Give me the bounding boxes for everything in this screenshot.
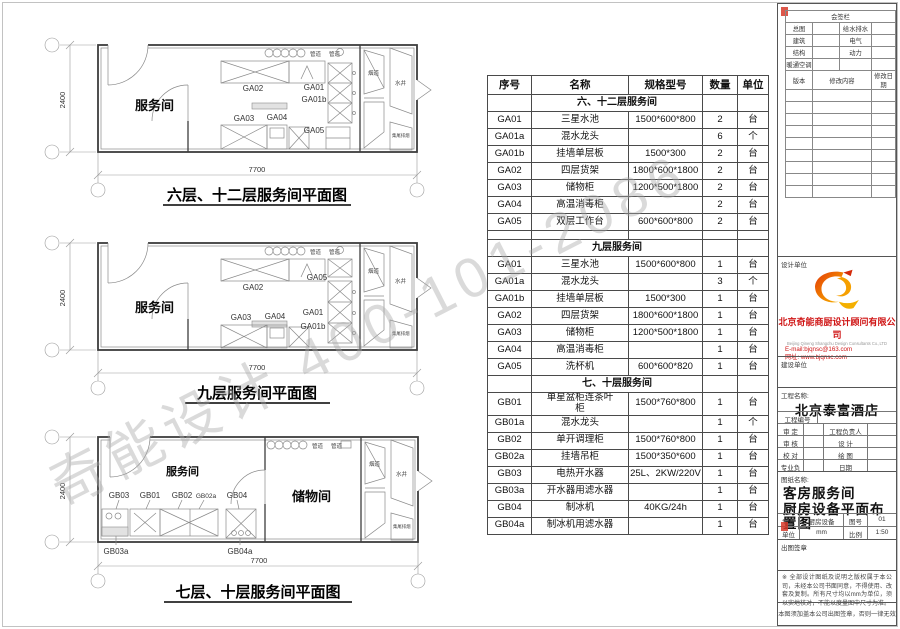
rev-blank [872, 174, 896, 186]
cell-name: 洗杯机 [532, 359, 629, 376]
cell-spec [629, 197, 703, 214]
svg-text:GB03: GB03 [109, 491, 130, 500]
meta-value: 1:50 [868, 527, 896, 539]
field-blank [804, 424, 824, 435]
cell-spec: 1800*600*1800 [629, 163, 703, 180]
room-label: 服务间 [166, 464, 199, 478]
drawing-name-line1: 客房服务间 [778, 484, 896, 503]
floor-plan-9: 2400 7700 管道 管道 [38, 226, 463, 426]
cell-unit: 台 [738, 342, 769, 359]
pipe-label: 管道 [310, 248, 322, 256]
qineng-logo-icon [806, 267, 868, 309]
plan-title: 六层、十二层服务间平面图 [167, 186, 347, 204]
floor-plan-7-10: 2400 7700 管道 管道 [38, 423, 463, 623]
rev-blank [872, 186, 896, 198]
sign-label: 建筑 [786, 35, 813, 47]
cell-code [488, 240, 532, 257]
cell-name: 混水龙头 [532, 415, 629, 432]
section-label: 九层服务间 [532, 240, 703, 257]
dim-width: 7700 [249, 363, 266, 372]
shaft-label: 水井 [396, 470, 408, 478]
sign-label: 结构 [786, 47, 813, 59]
entry-door [108, 42, 148, 85]
cell-qty: 2 [703, 146, 738, 163]
cell-name: 单开调理柜 [532, 432, 629, 449]
cell-name: 挂墙单层板 [532, 291, 629, 308]
cell-unit: 台 [738, 291, 769, 308]
cell-spec: 1500*600*800 [629, 112, 703, 129]
equipment-shapes [221, 61, 356, 149]
rev-blank [786, 162, 813, 174]
table-item-row: GA01b挂墙单层板1500*3001台 [488, 291, 769, 308]
field-label: 设 计 [824, 436, 868, 447]
sign-blank [872, 35, 896, 47]
walls [98, 437, 418, 542]
cell-unit: 台 [738, 517, 769, 534]
cell-unit: 台 [738, 197, 769, 214]
dimension-lines: 2400 7700 [58, 239, 421, 381]
cell-spec: 40KG/24h [629, 500, 703, 517]
cell-spec: 1500*300 [629, 146, 703, 163]
cell-code: GA03 [488, 180, 532, 197]
rev-blank [813, 138, 872, 150]
field-blank [868, 448, 896, 459]
table-item-row: GA05洗杯机600*600*8201台 [488, 359, 769, 376]
shaft-label: 烟道 [368, 69, 380, 77]
project-box: 工程名称: 北京泰富酒店 [778, 387, 896, 411]
shaft-zone: 烟道 水井 集尾排烟 [365, 440, 432, 540]
cell-name: 高温消毒柜 [532, 342, 629, 359]
rev-blank [786, 138, 813, 150]
cell-spec: 1500*350*600 [629, 449, 703, 466]
company-logo [778, 267, 896, 314]
cell-name: 储物柜 [532, 325, 629, 342]
sign-blank [813, 59, 840, 71]
title-block: 会签栏 总图给水排水 建筑电气 结构动力 暖通空调 版本修改内容修改日期 设计单… [777, 3, 897, 626]
dim-width: 7700 [249, 165, 266, 174]
rev-header: 版本 [786, 71, 813, 90]
cell-qty: 1 [703, 291, 738, 308]
cell-unit: 台 [738, 112, 769, 129]
rev-blank [786, 90, 813, 102]
shaft-zone: 烟道 水井 集尾排烟 [364, 48, 431, 150]
field-row: 审 定 工程负责人 [778, 423, 896, 435]
red-seal [781, 522, 788, 531]
svg-text:GA01b: GA01b [301, 322, 326, 331]
sign-label: 总图 [786, 23, 813, 35]
pipe-circles: 管道 管道 [265, 49, 344, 59]
cell-name: 四层货架 [532, 308, 629, 325]
cell-code: GB01 [488, 393, 532, 416]
cell-name: 制冰机用滤水器 [532, 517, 629, 534]
field-row: 审 核 设 计 [778, 435, 896, 447]
table-item-row: GA05双层工作台600*600*8002台 [488, 214, 769, 231]
cell-unit: 个 [738, 274, 769, 291]
project-label: 工程名称: [778, 388, 896, 400]
cell-unit [738, 240, 769, 257]
cell-qty: 1 [703, 359, 738, 376]
rev-blank [813, 114, 872, 126]
cell-unit [738, 95, 769, 112]
shaft-label: 集尾排烟 [393, 523, 411, 530]
svg-text:GA02: GA02 [243, 283, 264, 292]
cell-unit: 台 [738, 359, 769, 376]
equipment-labels: GB03 GB01 GB02 GB02a GB04 GB03a GB04a [104, 491, 253, 556]
project-no-row: 工程编号 [778, 411, 896, 423]
svg-text:GB04a: GB04a [228, 547, 253, 556]
cell-code: GA01 [488, 257, 532, 274]
table-section-row: 六、十二层服务间 [488, 95, 769, 112]
field-label: 工程负责人 [824, 424, 868, 435]
cell-spec: 1500*600*800 [629, 257, 703, 274]
cell-unit: 台 [738, 449, 769, 466]
table-item-row: GA01a混水龙头6个 [488, 129, 769, 146]
cell-qty: 1 [703, 257, 738, 274]
field-blank [868, 460, 896, 471]
column-header: 单位 [738, 76, 769, 95]
svg-text:GB02a: GB02a [196, 493, 217, 500]
table-item-row: GB04a制冰机用滤水器1台 [488, 517, 769, 534]
cell-code: GB02 [488, 432, 532, 449]
cell-empty [532, 231, 629, 240]
svg-text:GA03: GA03 [231, 313, 252, 322]
column-header: 规格型号 [629, 76, 703, 95]
svg-text:GB03a: GB03a [104, 547, 129, 556]
design-unit-box: 设计单位 北京奇能商厨设计顾问有限公司 Beijing Qineng Shang… [778, 256, 896, 356]
table-item-row: GB03a开水器用滤水器1台 [488, 483, 769, 500]
cell-code: GB03a [488, 483, 532, 500]
shaft-zone: 烟道 水井 集尾排烟 [364, 246, 431, 348]
cell-code: GB03 [488, 466, 532, 483]
cell-qty: 1 [703, 415, 738, 432]
rev-blank [786, 126, 813, 138]
rev-header: 修改日期 [872, 71, 896, 90]
cell-spec: 1500*300 [629, 291, 703, 308]
sign-blank [813, 47, 840, 59]
sign-blank [872, 59, 896, 71]
equipment-table-body: 六、十二层服务间GA01三星水池1500*600*8002台GA01a混水龙头6… [488, 95, 769, 535]
cell-qty: 2 [703, 112, 738, 129]
table-item-row: GB04制冰机40KG/24h1台 [488, 500, 769, 517]
table-item-row: GB02a挂墙吊柜1500*350*6001台 [488, 449, 769, 466]
cell-unit: 台 [738, 432, 769, 449]
meta-value: 厨房设备 [800, 514, 844, 526]
svg-text:GA04: GA04 [267, 113, 288, 122]
cell-name: 挂墙单层板 [532, 146, 629, 163]
cell-name: 三星水池 [532, 112, 629, 129]
section-label: 六、十二层服务间 [532, 95, 703, 112]
cell-name: 三星水池 [532, 257, 629, 274]
dim-width: 7700 [251, 556, 268, 565]
svg-text:GB02: GB02 [172, 491, 193, 500]
cell-unit: 台 [738, 325, 769, 342]
cell-code: GA01b [488, 146, 532, 163]
cell-name: 开水器用滤水器 [532, 483, 629, 500]
cell-code [488, 95, 532, 112]
field-blank [868, 436, 896, 447]
validity-note: 本图须加盖本公司出图签章，否则一律无效 [778, 602, 896, 625]
cell-empty [488, 231, 532, 240]
pipe-label: 管道 [329, 248, 341, 256]
cell-unit: 台 [738, 308, 769, 325]
rev-blank [813, 162, 872, 174]
cell-unit: 台 [738, 180, 769, 197]
cell-spec [629, 483, 703, 500]
table-blank-row [488, 231, 769, 240]
rev-blank [872, 114, 896, 126]
cell-code: GB02a [488, 449, 532, 466]
cell-spec [629, 342, 703, 359]
cell-spec [629, 274, 703, 291]
rev-blank [786, 174, 813, 186]
table-section-row: 九层服务间 [488, 240, 769, 257]
cell-qty [703, 376, 738, 393]
section-label: 七、十层服务间 [532, 376, 703, 393]
cell-qty: 1 [703, 517, 738, 534]
shaft-label: 集尾排烟 [392, 132, 410, 139]
cell-name: 高温消毒柜 [532, 197, 629, 214]
drawing-name-box: 图纸名称: 客房服务间 厨房设备平面布置图 [778, 471, 896, 513]
copyright-note: ※ 全部设计图纸及说明之版权属于本公司，未经本公司书面同意，不得使用、改套及复制… [778, 570, 896, 602]
svg-text:GA02: GA02 [243, 84, 264, 93]
cell-unit: 台 [738, 483, 769, 500]
cell-unit: 个 [738, 415, 769, 432]
pipe-circles: 管道 管道 [267, 441, 351, 450]
dim-height: 2400 [58, 483, 67, 500]
cell-empty [738, 231, 769, 240]
equipment-table: 序号 名称 规格型号 数量 单位 六、十二层服务间GA01三星水池1500*60… [487, 75, 769, 535]
sign-blank [813, 35, 840, 47]
cell-qty: 1 [703, 342, 738, 359]
signature-table: 会签栏 总图给水排水 建筑电气 结构动力 暖通空调 版本修改内容修改日期 [785, 10, 896, 198]
cell-code: GA05 [488, 359, 532, 376]
cell-qty [703, 240, 738, 257]
rev-blank [872, 90, 896, 102]
company-name-en: Beijing Qineng Shangchu Design Consultan… [784, 341, 890, 346]
cell-qty: 1 [703, 449, 738, 466]
company-name-cn: 北京奇能商厨设计顾问有限公司 [778, 315, 896, 341]
dimension-lines: 2400 7700 [58, 41, 421, 183]
plan-title: 七层、十层服务间平面图 [175, 583, 340, 601]
cell-code: GA04 [488, 342, 532, 359]
cell-unit: 台 [738, 257, 769, 274]
room-label: 储物间 [291, 489, 331, 504]
equipment-shapes [221, 259, 356, 348]
dim-height: 2400 [58, 290, 67, 307]
cell-code: GA01a [488, 274, 532, 291]
svg-text:GB04: GB04 [227, 491, 248, 500]
meta-label: 比例 [844, 527, 868, 539]
shaft-label: 烟道 [369, 460, 381, 468]
svg-text:GA05: GA05 [307, 273, 328, 282]
cell-qty: 1 [703, 308, 738, 325]
meta-row: 单位 mm 比例 1:50 [778, 526, 896, 539]
rev-blank [786, 150, 813, 162]
shaft-label: 烟道 [368, 267, 380, 275]
sign-blank [872, 23, 896, 35]
cell-code: GA03 [488, 325, 532, 342]
room-label: 服务间 [135, 98, 174, 113]
table-item-row: GB01单星盆柜连茶叶 柜1500*760*8001台 [488, 393, 769, 416]
rev-blank [872, 102, 896, 114]
equipment-shapes [102, 500, 256, 545]
cell-spec: 1200*500*1800 [629, 325, 703, 342]
rev-blank [786, 114, 813, 126]
meta-value: mm [800, 527, 844, 539]
table-header-row: 序号 名称 规格型号 数量 单位 [488, 76, 769, 95]
cell-unit: 台 [738, 393, 769, 416]
meta-value: 01 [868, 514, 896, 526]
rev-blank [872, 150, 896, 162]
field-label: 审 定 [778, 424, 804, 435]
table-item-row: GB02单开调理柜1500*760*8001台 [488, 432, 769, 449]
cell-spec: 1500*760*800 [629, 432, 703, 449]
seal-label: 出图签章 [778, 540, 896, 552]
table-item-row: GA01三星水池1500*600*8002台 [488, 112, 769, 129]
rev-blank [872, 138, 896, 150]
cell-code: GA05 [488, 214, 532, 231]
rev-blank [813, 102, 872, 114]
cell-empty [629, 231, 703, 240]
cell-qty: 2 [703, 197, 738, 214]
sign-blank [872, 47, 896, 59]
cell-name: 电热开水器 [532, 466, 629, 483]
field-blank [868, 424, 896, 435]
cell-name: 双层工作台 [532, 214, 629, 231]
field-label: 绘 图 [824, 448, 868, 459]
cell-spec: 1800*600*1800 [629, 308, 703, 325]
cell-unit: 台 [738, 214, 769, 231]
room-label: 服务间 [135, 300, 174, 315]
project-no-label: 工程编号 [778, 412, 818, 423]
field-blank [804, 460, 824, 471]
cell-qty: 6 [703, 129, 738, 146]
cell-unit: 台 [738, 163, 769, 180]
cell-empty [703, 231, 738, 240]
pipe-label: 管道 [329, 50, 341, 58]
cell-code: GB04a [488, 517, 532, 534]
cell-qty: 3 [703, 274, 738, 291]
table-item-row: GA01三星水池1500*600*8001台 [488, 257, 769, 274]
cell-code: GA01 [488, 112, 532, 129]
cell-name: 储物柜 [532, 180, 629, 197]
entry-door [110, 434, 150, 477]
rev-blank [813, 126, 872, 138]
rev-blank [813, 186, 872, 198]
cell-unit: 台 [738, 466, 769, 483]
cell-name: 四层货架 [532, 163, 629, 180]
rev-blank [786, 186, 813, 198]
cell-qty: 1 [703, 500, 738, 517]
cell-qty: 2 [703, 163, 738, 180]
cell-spec: 1200*500*1800 [629, 180, 703, 197]
svg-text:GA04: GA04 [265, 312, 286, 321]
shaft-label: 水井 [395, 277, 407, 285]
meta-label: 图号 [844, 514, 868, 526]
table-item-row: GB01a混水龙头1个 [488, 415, 769, 432]
field-blank [804, 436, 824, 447]
cell-name: 单星盆柜连茶叶 柜 [532, 393, 629, 416]
drawing-label: 图纸名称: [778, 472, 896, 484]
field-label: 校 对 [778, 448, 804, 459]
rev-blank [872, 162, 896, 174]
floor-plan-6-12: 2400 7700 管道 管道 [38, 28, 463, 228]
sign-label: 电气 [840, 35, 872, 47]
table-item-row: GB03电热开水器25L、2KW/220V1台 [488, 466, 769, 483]
svg-text:GA01b: GA01b [302, 95, 327, 104]
cell-unit: 台 [738, 146, 769, 163]
sign-label [840, 59, 872, 71]
cell-unit: 台 [738, 500, 769, 517]
rev-blank [872, 126, 896, 138]
rev-header: 修改内容 [813, 71, 872, 90]
field-label: 日期 [824, 460, 868, 471]
cell-code: GA02 [488, 308, 532, 325]
meta-row: 专业 厨房设备 图号 01 [778, 513, 896, 526]
field-label: 专业负责人 [778, 460, 804, 471]
drawing-sheet: 奇能设计 400-101-2086 2400 7700 [0, 0, 900, 629]
cell-spec: 25L、2KW/220V [629, 466, 703, 483]
cell-spec: 600*600*820 [629, 359, 703, 376]
shaft-label: 集尾排烟 [392, 330, 410, 337]
table-item-row: GA03储物柜1200*500*18002台 [488, 180, 769, 197]
shaft-label: 水井 [395, 79, 407, 87]
pipe-label: 管道 [312, 442, 324, 450]
cell-qty [703, 95, 738, 112]
table-section-row: 七、十层服务间 [488, 376, 769, 393]
cell-code: GB04 [488, 500, 532, 517]
cell-qty: 1 [703, 393, 738, 416]
dim-height: 2400 [58, 92, 67, 109]
cell-qty: 1 [703, 432, 738, 449]
svg-text:GA01: GA01 [303, 308, 324, 317]
field-blank [804, 448, 824, 459]
project-no-value [818, 412, 896, 423]
cell-code: GA01a [488, 129, 532, 146]
build-unit-label: 建设单位 [778, 357, 896, 369]
field-label: 审 核 [778, 436, 804, 447]
field-row: 校 对 绘 图 [778, 447, 896, 459]
column-header: 名称 [532, 76, 629, 95]
field-row: 专业负责人 日期 [778, 459, 896, 471]
cell-spec: 600*600*800 [629, 214, 703, 231]
cell-name: 混水龙头 [532, 129, 629, 146]
rev-blank [786, 102, 813, 114]
rev-blank [813, 150, 872, 162]
column-header: 序号 [488, 76, 532, 95]
cell-qty: 1 [703, 466, 738, 483]
cell-qty: 2 [703, 180, 738, 197]
rev-blank [813, 174, 872, 186]
cell-name: 挂墙吊柜 [532, 449, 629, 466]
rev-blank [813, 90, 872, 102]
cell-name: 混水龙头 [532, 274, 629, 291]
svg-text:GA01: GA01 [304, 83, 325, 92]
cell-spec [629, 129, 703, 146]
svg-text:GA05: GA05 [304, 126, 325, 135]
pipe-label: 管道 [310, 50, 322, 58]
sign-title: 会签栏 [786, 11, 896, 23]
cell-spec [629, 415, 703, 432]
cell-code: GA04 [488, 197, 532, 214]
entry-door [108, 240, 148, 283]
cell-unit: 个 [738, 129, 769, 146]
table-item-row: GA04高温消毒柜2台 [488, 197, 769, 214]
sign-label: 给水排水 [840, 23, 872, 35]
cell-code [488, 376, 532, 393]
cell-spec: 1500*760*800 [629, 393, 703, 416]
table-item-row: GA03储物柜1200*500*18001台 [488, 325, 769, 342]
